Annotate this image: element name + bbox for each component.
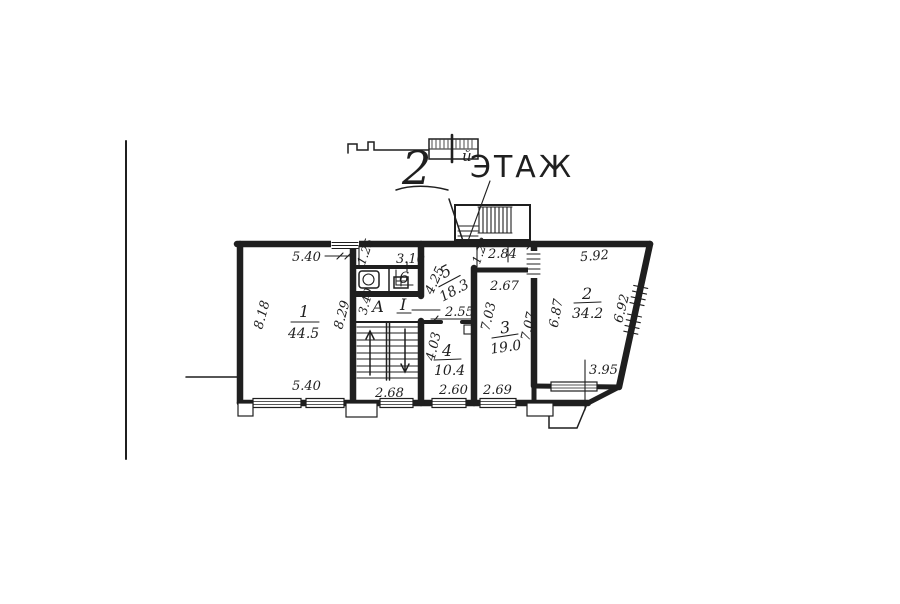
room2-bottom-window: [551, 381, 597, 392]
wall-pier: [346, 403, 377, 417]
dim-room3-width: 2.67: [489, 279, 520, 294]
dim-wc-width: 3.10: [396, 252, 425, 267]
top-wall-window: [331, 239, 359, 249]
window-symbol: [432, 399, 466, 408]
dim-room5-opening: 2.55: [444, 305, 474, 320]
dim-room3-left: 7.03: [479, 301, 500, 333]
toilet-icon: [359, 271, 379, 288]
room-3-number: 3: [499, 317, 512, 337]
title-floor-word: ЭТАЖ: [470, 150, 574, 185]
floor-plan-canvas: 2 й ЭТАЖ: [0, 0, 900, 604]
stair-arrow-down: [401, 329, 409, 372]
room-3-area: 19.0: [489, 338, 522, 358]
scanned-floor-plan-page: 2 й ЭТАЖ: [0, 0, 900, 604]
window-symbol: [480, 399, 516, 408]
room-4: 4 10.4 4.03 2.60: [423, 331, 468, 398]
room-4-number: 4: [441, 341, 452, 360]
room-2: 2 34.2 5.92 6.87 6.92 3.95: [547, 248, 633, 378]
dim-room3-top: 2.84: [487, 247, 517, 262]
dim-room2-right: 6.92: [611, 293, 633, 325]
stairwell-label: А I: [371, 295, 440, 316]
room-2-number: 2: [581, 284, 592, 303]
window-symbol: [306, 399, 344, 408]
window-symbol: [253, 399, 301, 408]
dim-room1-top: 5.40: [292, 250, 321, 265]
dim-stair-width: 2.68: [374, 386, 404, 401]
dim-room2-left: 6.87: [547, 297, 567, 329]
dim-room1-bottom: 5.40: [292, 379, 321, 394]
dim-room2-bottom: 3.95: [589, 363, 618, 378]
dim-room3-bottom: 2.69: [482, 383, 512, 398]
dim-room2-top: 5.92: [579, 248, 609, 265]
room-1-number: 1: [299, 302, 309, 321]
room-2-area: 34.2: [572, 306, 603, 322]
dim-room1-left: 8.18: [252, 299, 274, 331]
wall-pier: [527, 403, 553, 416]
bottom-right-protrusion: [549, 403, 587, 428]
plan-title: 2 й ЭТАЖ: [348, 135, 574, 241]
room2-left-wall-window: [527, 251, 540, 278]
stairwell-roman-number: I: [399, 295, 407, 314]
wall-pier: [238, 403, 253, 416]
wc-room-number: 6: [399, 268, 409, 287]
dim-room4-bottom: 2.60: [438, 383, 468, 398]
room-4-area: 10.4: [434, 363, 465, 379]
room-1-area: 44.5: [287, 326, 319, 342]
room-1: 1 44.5 5.40 5.40 8.18 8.29: [252, 250, 354, 394]
